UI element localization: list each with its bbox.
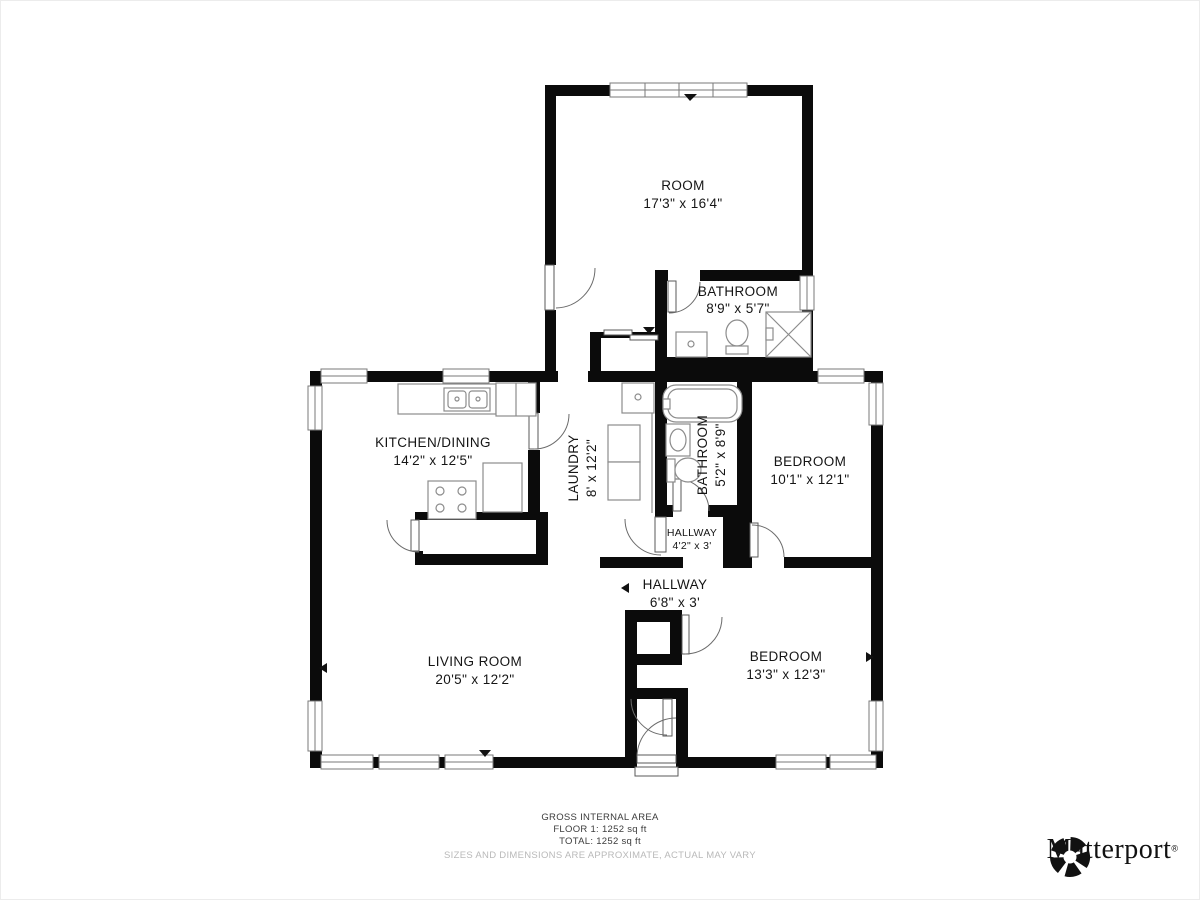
walls xyxy=(310,85,883,768)
label-living-name: LIVING ROOM xyxy=(428,654,522,669)
kitchen-cabinet xyxy=(483,463,522,512)
footer-disclaimer: SIZES AND DIMENSIONS ARE APPROXIMATE, AC… xyxy=(0,850,1200,862)
closet-door-leaf xyxy=(682,615,689,654)
closet-sliding-door xyxy=(604,330,632,335)
label-room-name: ROOM xyxy=(661,178,705,193)
label-living-dims: 20'5" x 12'2" xyxy=(435,672,514,687)
label-bathroom-top-dims: 8'9" x 5'7" xyxy=(706,301,769,316)
label-hallway-main-name: HALLWAY xyxy=(643,577,708,592)
label-bathroom-top-name: BATHROOM xyxy=(698,284,778,299)
label-bathroom-mid-name: BATHROOM xyxy=(695,415,710,495)
matterport-logo: Matterport® xyxy=(1047,834,1178,866)
floor-plan-drawing: ROOM 17'3" x 16'4" BATHROOM 8'9" x 5'7" … xyxy=(0,0,1200,900)
footer-title: GROSS INTERNAL AREA xyxy=(0,812,1200,824)
label-room-dims: 17'3" x 16'4" xyxy=(643,196,722,211)
entry-door-leaf xyxy=(637,755,676,763)
footer-floor-area: FLOOR 1: 1252 sq ft xyxy=(0,824,1200,836)
bathroom-top-toilet xyxy=(726,320,748,346)
room-door-leaf xyxy=(545,265,554,310)
bathroom-mid-toilet xyxy=(667,459,675,482)
label-kitchen-name: KITCHEN/DINING xyxy=(375,435,491,450)
label-laundry-dims: 8' x 12'2" xyxy=(584,439,599,497)
label-bedroom-right-dims: 10'1" x 12'1" xyxy=(770,472,849,487)
pantry-door-leaf xyxy=(411,520,419,551)
label-hallway-small-dims: 4'2" x 3' xyxy=(672,540,711,552)
label-laundry-name: LAUNDRY xyxy=(566,434,581,501)
bathroom-top-sink xyxy=(676,332,707,357)
registered-trademark: ® xyxy=(1171,844,1178,854)
hallway-door-leaf xyxy=(655,517,666,552)
label-bathroom-mid-dims: 5'2" x 8'9" xyxy=(713,423,728,486)
footer-total-area: TOTAL: 1252 sq ft xyxy=(0,836,1200,848)
label-kitchen-dims: 14'2" x 12'5" xyxy=(393,453,472,468)
label-bedroom-right-name: BEDROOM xyxy=(774,454,847,469)
label-hallway-small-name: HALLWAY xyxy=(667,527,717,539)
label-bedroom-bottom-name: BEDROOM xyxy=(750,649,823,664)
utility-sink xyxy=(622,383,654,413)
entry-porch-step xyxy=(635,767,678,776)
washer xyxy=(608,425,640,462)
dryer xyxy=(608,462,640,500)
label-hallway-main-dims: 6'8" x 3' xyxy=(650,595,700,610)
kitchen-door-leaf xyxy=(529,413,538,449)
bathroom-top-door-leaf xyxy=(668,281,676,312)
vestibule-door-leaf xyxy=(663,699,672,736)
matterport-pinwheel-icon xyxy=(1047,834,1093,880)
gross-internal-area-note: GROSS INTERNAL AREA FLOOR 1: 1252 sq ft … xyxy=(0,812,1200,862)
bedroom-right-door-leaf xyxy=(750,523,758,557)
label-bedroom-bottom-dims: 13'3" x 12'3" xyxy=(746,667,825,682)
floor-plan-page: ROOM 17'3" x 16'4" BATHROOM 8'9" x 5'7" … xyxy=(0,0,1200,900)
bathroom-mid-door-leaf xyxy=(673,479,681,511)
stove xyxy=(428,481,476,519)
